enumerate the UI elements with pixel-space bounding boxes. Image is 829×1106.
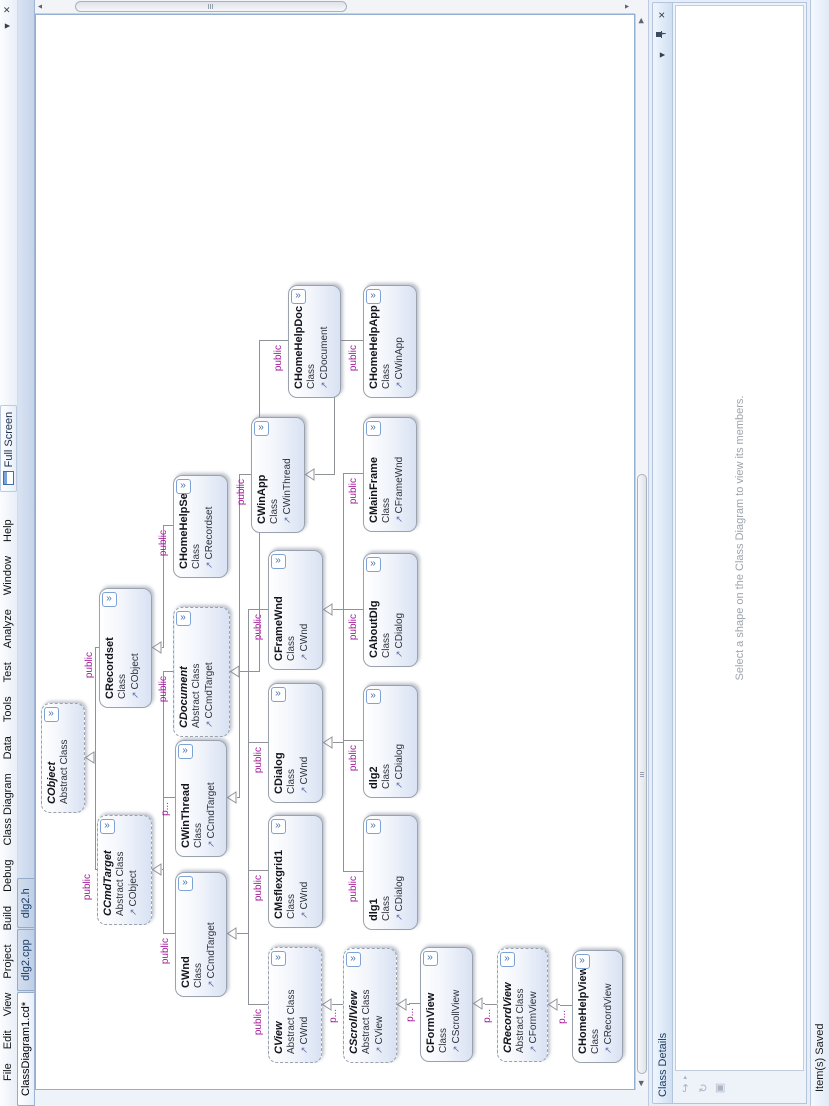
inheritance-access-label: public <box>158 676 169 718</box>
class-box-chomehelpdoc[interactable]: CHomeHelpDocClass↗CDocument» <box>288 285 341 398</box>
expand-chevron-icon[interactable]: » <box>366 289 381 304</box>
base-class-arrow-icon: ↗ <box>299 1046 309 1054</box>
base-class-arrow-icon: ↗ <box>204 720 214 728</box>
expand-chevron-icon[interactable]: » <box>271 687 286 702</box>
base-class-arrow-icon: ↗ <box>319 381 329 389</box>
class-box-ccmdtarget[interactable]: CCmdTargetAbstract Class↗CObject» <box>97 815 152 925</box>
inheritance-access-label: public <box>348 614 359 656</box>
expand-chevron-icon[interactable]: » <box>178 744 193 759</box>
base-class-row: ↗CDialog <box>393 832 406 921</box>
connector-segment <box>248 1004 268 1005</box>
inheritance-arrow-icon <box>227 927 237 940</box>
expand-chevron-icon[interactable]: » <box>500 952 515 967</box>
expand-chevron-icon[interactable]: » <box>366 819 381 834</box>
class-kind: Abstract Class <box>115 832 127 916</box>
connector-segment <box>343 473 363 474</box>
inheritance-access-label: p... <box>557 1010 568 1052</box>
class-box-crecordset[interactable]: CRecordsetClass↗CObject» <box>99 588 152 708</box>
class-box-cwnd[interactable]: CWndClass↗CCmdTarget» <box>175 872 227 997</box>
inheritance-arrow-icon <box>152 863 162 876</box>
status-text: Item(s) Saved <box>814 1024 826 1092</box>
base-class-row: ↗CWnd <box>298 964 311 1054</box>
base-class-arrow-icon: ↗ <box>128 908 138 916</box>
class-box-cdialog[interactable]: CDialogClass↗CWnd» <box>268 683 323 803</box>
expand-chevron-icon[interactable]: » <box>291 289 306 304</box>
inheritance-access-label: p... <box>328 1009 339 1051</box>
inheritance-access-label: public <box>236 479 247 521</box>
connector-segment <box>343 474 344 610</box>
inheritance-access-label: public <box>273 345 284 387</box>
inheritance-access-label: public <box>253 875 264 917</box>
base-class-arrow-icon: ↗ <box>374 1046 384 1054</box>
base-class-arrow-icon: ↗ <box>206 840 216 848</box>
add-member-dropdown-icon[interactable]: ▸ <box>681 1075 689 1079</box>
class-name: CDialog <box>272 700 286 794</box>
auto-hide-pin-icon[interactable] <box>655 27 670 43</box>
base-class-arrow-icon: ↗ <box>603 1046 613 1054</box>
connector-segment <box>248 609 268 610</box>
add-member-icon[interactable]: ↪ <box>679 1078 694 1098</box>
expand-chevron-icon[interactable]: » <box>176 479 191 494</box>
connector-segment <box>343 609 363 610</box>
connector-segment <box>163 525 173 526</box>
connector-segment <box>409 1003 420 1004</box>
base-class-row: ↗CWnd <box>298 700 311 794</box>
class-name: CHomeHelpApp <box>367 302 381 389</box>
connector-segment <box>237 933 248 934</box>
expand-chevron-icon[interactable]: » <box>271 554 286 569</box>
inheritance-arrow-icon <box>323 736 333 749</box>
expand-chevron-icon[interactable]: » <box>176 611 191 626</box>
connector-segment <box>163 797 175 798</box>
base-class-row: ↗CCmdTarget <box>203 624 216 728</box>
class-box-cobject[interactable]: CObjectAbstract Class» <box>41 703 85 813</box>
class-name: CRecordView <box>501 965 515 1053</box>
connector-segment <box>240 671 259 672</box>
class-kind: Class <box>193 757 205 848</box>
expand-chevron-icon[interactable]: » <box>102 592 117 607</box>
class-kind: Class <box>191 492 203 569</box>
class-name: CFormView <box>424 964 438 1053</box>
base-class-row: ↗CDialog <box>393 702 406 789</box>
class-details-body: ↪ ▸ ↻ ▣ Select a shape on the Class Diag… <box>673 2 807 1104</box>
close-panel-icon[interactable]: ✕ <box>655 7 670 23</box>
inheritance-arrow-icon <box>230 665 240 678</box>
base-class-row: ↗CRecordset <box>203 492 216 569</box>
class-name: CScrollView <box>347 965 361 1054</box>
class-box-cwinthread[interactable]: CWinThreadClass↗CCmdTarget» <box>175 740 227 857</box>
base-class-row: ↗CWinApp <box>393 302 406 389</box>
class-box-cdocument[interactable]: CDocumentAbstract Class↗CCmdTarget» <box>173 607 230 737</box>
base-class-row: ↗CFormView <box>527 965 540 1053</box>
base-class-row: ↗CWnd <box>298 832 311 919</box>
base-class-row: ↗CFrameWnd <box>393 434 406 523</box>
inheritance-arrow-icon <box>152 641 162 654</box>
inheritance-access-label: p... <box>482 1009 493 1051</box>
class-name: CHomeHelpSet <box>177 492 191 569</box>
class-kind: Class <box>438 964 450 1053</box>
class-box-cview[interactable]: CViewAbstract Class↗CWnd» <box>268 947 322 1063</box>
class-name: CHomeHelpView <box>576 967 590 1054</box>
connector-segment <box>163 933 175 934</box>
boxes-icon[interactable]: ▣ <box>713 1078 728 1098</box>
connector-segment <box>333 1004 343 1005</box>
connector-segment <box>333 609 343 610</box>
base-class-row: ↗CWnd <box>298 567 311 661</box>
class-name: dlg2 <box>367 702 381 789</box>
connector-segment <box>163 671 173 672</box>
expand-chevron-icon[interactable]: » <box>366 421 381 436</box>
class-kind: Class <box>286 832 298 919</box>
class-box-chomehelpset[interactable]: CHomeHelpSetClass↗CRecordset» <box>173 475 228 578</box>
connector-segment <box>343 610 344 872</box>
inheritance-access-label: public <box>160 938 171 980</box>
class-name: CHomeHelpDoc <box>292 302 306 389</box>
class-box-chomehelpapp[interactable]: CHomeHelpAppClass↗CWinApp» <box>363 285 417 398</box>
inheritance-access-label: p... <box>160 802 171 844</box>
inheritance-access-label: public <box>348 478 359 520</box>
base-class-arrow-icon: ↗ <box>299 911 309 919</box>
class-kind: Abstract Class <box>286 964 298 1054</box>
connector-segment <box>315 474 334 475</box>
class-name: CWinThread <box>179 757 193 848</box>
status-bar: Item(s) Saved <box>810 0 829 1106</box>
class-box-chomehelpview[interactable]: CHomeHelpViewClass↗CRecordView» <box>572 950 623 1063</box>
class-name: dlg1 <box>367 832 381 921</box>
inheritance-access-label: public <box>348 745 359 787</box>
connector-segment <box>248 742 268 743</box>
base-class-arrow-icon: ↗ <box>394 515 404 523</box>
class-kind: Class <box>286 567 298 661</box>
connector-segment <box>248 610 249 1005</box>
class-box-cframewnd[interactable]: CFrameWndClass↗CWnd» <box>268 550 323 670</box>
class-kind: Class <box>381 302 393 389</box>
class-box-dlg2[interactable]: dlg2Class↗CDialog» <box>363 685 418 798</box>
class-kind: Class <box>286 700 298 794</box>
base-class-arrow-icon: ↗ <box>206 980 216 988</box>
connector-segment <box>560 1005 572 1006</box>
base-class-arrow-icon: ↗ <box>451 1045 461 1053</box>
base-class-row: ↗CScrollView <box>450 964 463 1053</box>
base-class-arrow-icon: ↗ <box>394 913 404 921</box>
base-class-row: ↗CObject <box>127 832 140 916</box>
base-class-arrow-icon: ↗ <box>528 1045 538 1053</box>
class-box-cscrollview[interactable]: CScrollViewAbstract Class↗CView» <box>343 948 397 1063</box>
class-name: CFrameWnd <box>272 567 286 661</box>
class-name: CRecordset <box>103 605 117 699</box>
base-class-arrow-icon: ↗ <box>394 381 404 389</box>
inheritance-arrow-icon <box>305 468 315 481</box>
class-name: CCmdTarget <box>101 832 115 916</box>
connector-segment <box>409 1004 410 1005</box>
panel-title: Class Details <box>657 63 669 1103</box>
class-name: CObject <box>45 720 59 804</box>
class-details-panel: Class Details ▼ ✕ ↪ ▸ ↻ ▣ Select a shape… <box>648 0 810 1106</box>
connector-segment <box>95 648 96 870</box>
expand-chevron-icon[interactable]: » <box>271 951 286 966</box>
class-kind: Abstract Class <box>191 624 203 728</box>
rotated-screenshot-viewport: FileEditViewProjectBuildDebugClass Diagr… <box>0 0 829 1106</box>
visual-studio-window: FileEditViewProjectBuildDebugClass Diagr… <box>0 0 829 1106</box>
class-box-dlg1[interactable]: dlg1Class↗CDialog» <box>363 815 418 930</box>
class-name: CMsflexgrid1 <box>272 832 286 919</box>
connector-segment <box>343 740 363 741</box>
class-name: CWinApp <box>255 434 269 524</box>
inheritance-arrow-icon <box>323 603 333 616</box>
connector-segment <box>239 474 251 475</box>
expand-chevron-icon[interactable]: » <box>575 954 590 969</box>
inheritance-access-label: public <box>158 530 169 572</box>
expand-chevron-icon[interactable]: » <box>254 421 269 436</box>
base-class-row: ↗CRecordView <box>602 967 615 1054</box>
base-class-row: ↗CCmdTarget <box>205 757 218 848</box>
class-kind: Class <box>590 967 602 1054</box>
connector-segment <box>239 475 240 798</box>
inheritance-access-label: p... <box>405 1008 416 1050</box>
class-kind: Class <box>306 302 318 389</box>
class-kind: Class <box>381 832 393 921</box>
base-class-arrow-icon: ↗ <box>394 650 404 658</box>
base-class-arrow-icon: ↗ <box>130 691 140 699</box>
class-details-grid: Select a shape on the Class Diagram to v… <box>675 5 804 1071</box>
class-box-crecordview[interactable]: CRecordViewAbstract Class↗CFormView» <box>497 948 548 1062</box>
base-class-arrow-icon: ↗ <box>282 516 292 524</box>
class-kind: Abstract Class <box>361 965 373 1054</box>
class-box-cwinapp[interactable]: CWinAppClass↗CWinThread» <box>251 417 305 533</box>
expand-chevron-icon[interactable]: » <box>423 951 438 966</box>
class-name: CView <box>272 964 286 1054</box>
base-class-arrow-icon: ↗ <box>204 561 214 569</box>
class-box-cmainframe[interactable]: CMainFrameClass↗CFrameWnd» <box>363 417 417 532</box>
class-name: CDocument <box>177 624 191 728</box>
expand-chevron-icon[interactable]: » <box>346 952 361 967</box>
class-kind: Class <box>381 434 393 523</box>
connector-segment <box>248 870 268 871</box>
class-kind: Abstract Class <box>59 720 71 804</box>
class-box-caboutdlg[interactable]: CAboutDlgClass↗CDialog» <box>363 553 418 667</box>
expand-chevron-icon[interactable]: » <box>178 876 193 891</box>
expand-chevron-icon[interactable]: » <box>366 689 381 704</box>
inheritance-access-label: public <box>253 747 264 789</box>
base-class-arrow-icon: ↗ <box>394 781 404 789</box>
inheritance-access-label: public <box>348 876 359 918</box>
inheritance-arrow-icon <box>85 751 95 764</box>
inheritance-access-label: public <box>253 1009 264 1051</box>
base-class-row: ↗CView <box>373 965 386 1054</box>
expand-chevron-icon[interactable]: » <box>271 819 286 834</box>
base-class-row: ↗CWinThread <box>281 434 294 524</box>
connector-segment <box>259 340 288 341</box>
expand-chevron-icon[interactable]: » <box>366 557 381 572</box>
curved-arrow-icon[interactable]: ↻ <box>697 1078 712 1098</box>
expand-chevron-icon[interactable]: » <box>100 819 115 834</box>
class-kind: Abstract Class <box>515 965 527 1053</box>
class-box-cformview[interactable]: CFormViewClass↗CScrollView» <box>420 947 473 1062</box>
inheritance-arrow-icon <box>227 791 237 804</box>
class-kind: Class <box>117 605 129 699</box>
class-box-cmsflexgrid1[interactable]: CMsflexgrid1Class↗CWnd» <box>268 815 323 928</box>
class-kind: Class <box>381 570 393 658</box>
class-kind: Class <box>381 702 393 789</box>
class-details-hint: Select a shape on the Class Diagram to v… <box>734 396 746 681</box>
class-kind: Class <box>193 889 205 988</box>
connector-segment <box>485 1004 497 1005</box>
base-class-arrow-icon: ↗ <box>299 653 309 661</box>
class-kind: Class <box>269 434 281 524</box>
base-class-row: ↗CCmdTarget <box>205 889 218 988</box>
class-name: CMainFrame <box>367 434 381 523</box>
class-name: CAboutDlg <box>367 570 381 658</box>
expand-chevron-icon[interactable]: » <box>44 707 59 722</box>
inheritance-access-label: public <box>84 652 95 694</box>
base-class-arrow-icon: ↗ <box>299 786 309 794</box>
base-class-row: ↗CObject <box>129 605 142 699</box>
base-class-row: ↗CDialog <box>393 570 406 658</box>
class-details-toolbar: ↪ ▸ ↻ ▣ <box>673 1071 806 1103</box>
connector-segment <box>343 871 363 872</box>
inheritance-access-label: public <box>348 345 359 387</box>
class-details-titlebar[interactable]: Class Details ▼ ✕ <box>652 2 673 1104</box>
class-name: CWnd <box>179 889 193 988</box>
connector-segment <box>333 742 343 743</box>
base-class-row: ↗CDocument <box>318 302 331 389</box>
window-position-dropdown-icon[interactable]: ▼ <box>655 47 670 63</box>
inheritance-access-label: public <box>82 874 93 916</box>
